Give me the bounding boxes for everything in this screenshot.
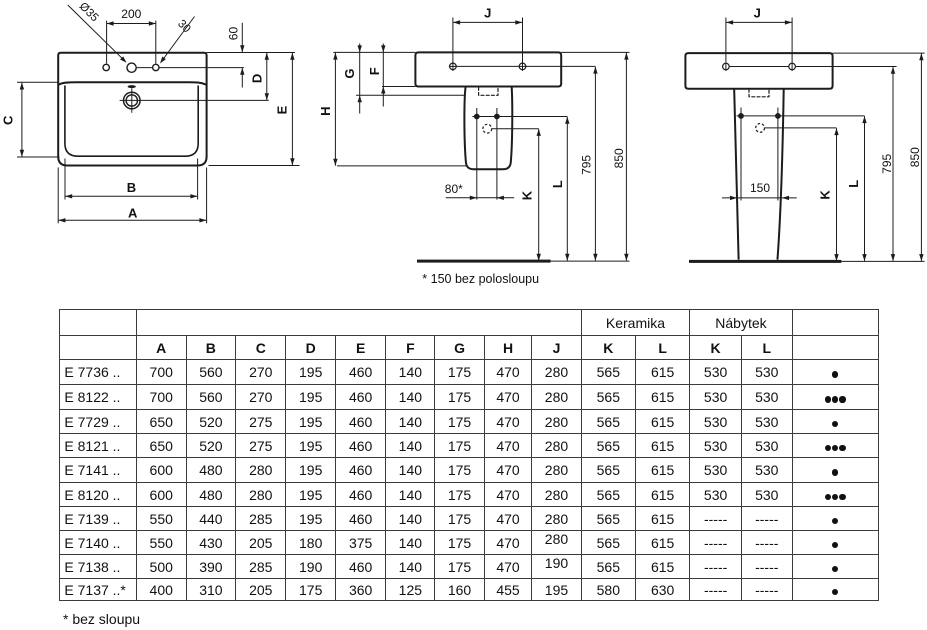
svg-text:K: K xyxy=(520,190,535,200)
svg-text:H: H xyxy=(318,107,333,116)
svg-text:850: 850 xyxy=(612,148,626,168)
svg-text:A: A xyxy=(128,206,138,221)
svg-text:150: 150 xyxy=(750,181,770,195)
svg-text:G: G xyxy=(342,68,357,78)
svg-text:200: 200 xyxy=(121,7,141,21)
svg-text:J: J xyxy=(754,6,761,21)
svg-text:30: 30 xyxy=(175,18,193,36)
svg-text:Ø35: Ø35 xyxy=(77,0,101,24)
svg-text:60: 60 xyxy=(226,27,240,41)
svg-text:795: 795 xyxy=(880,153,894,173)
svg-text:795: 795 xyxy=(580,155,594,175)
svg-text:B: B xyxy=(127,180,136,195)
svg-text:K: K xyxy=(817,190,832,200)
svg-text:J: J xyxy=(484,6,491,21)
svg-text:80*: 80* xyxy=(445,182,463,196)
svg-text:L: L xyxy=(550,180,565,188)
svg-text:850: 850 xyxy=(908,147,922,167)
svg-text:* 150 bez polosloupu: * 150 bez polosloupu xyxy=(422,272,539,286)
svg-text:E: E xyxy=(275,105,290,114)
svg-text:F: F xyxy=(367,67,382,75)
svg-text:D: D xyxy=(250,74,265,83)
svg-text:L: L xyxy=(846,180,861,188)
svg-text:C: C xyxy=(1,115,16,125)
